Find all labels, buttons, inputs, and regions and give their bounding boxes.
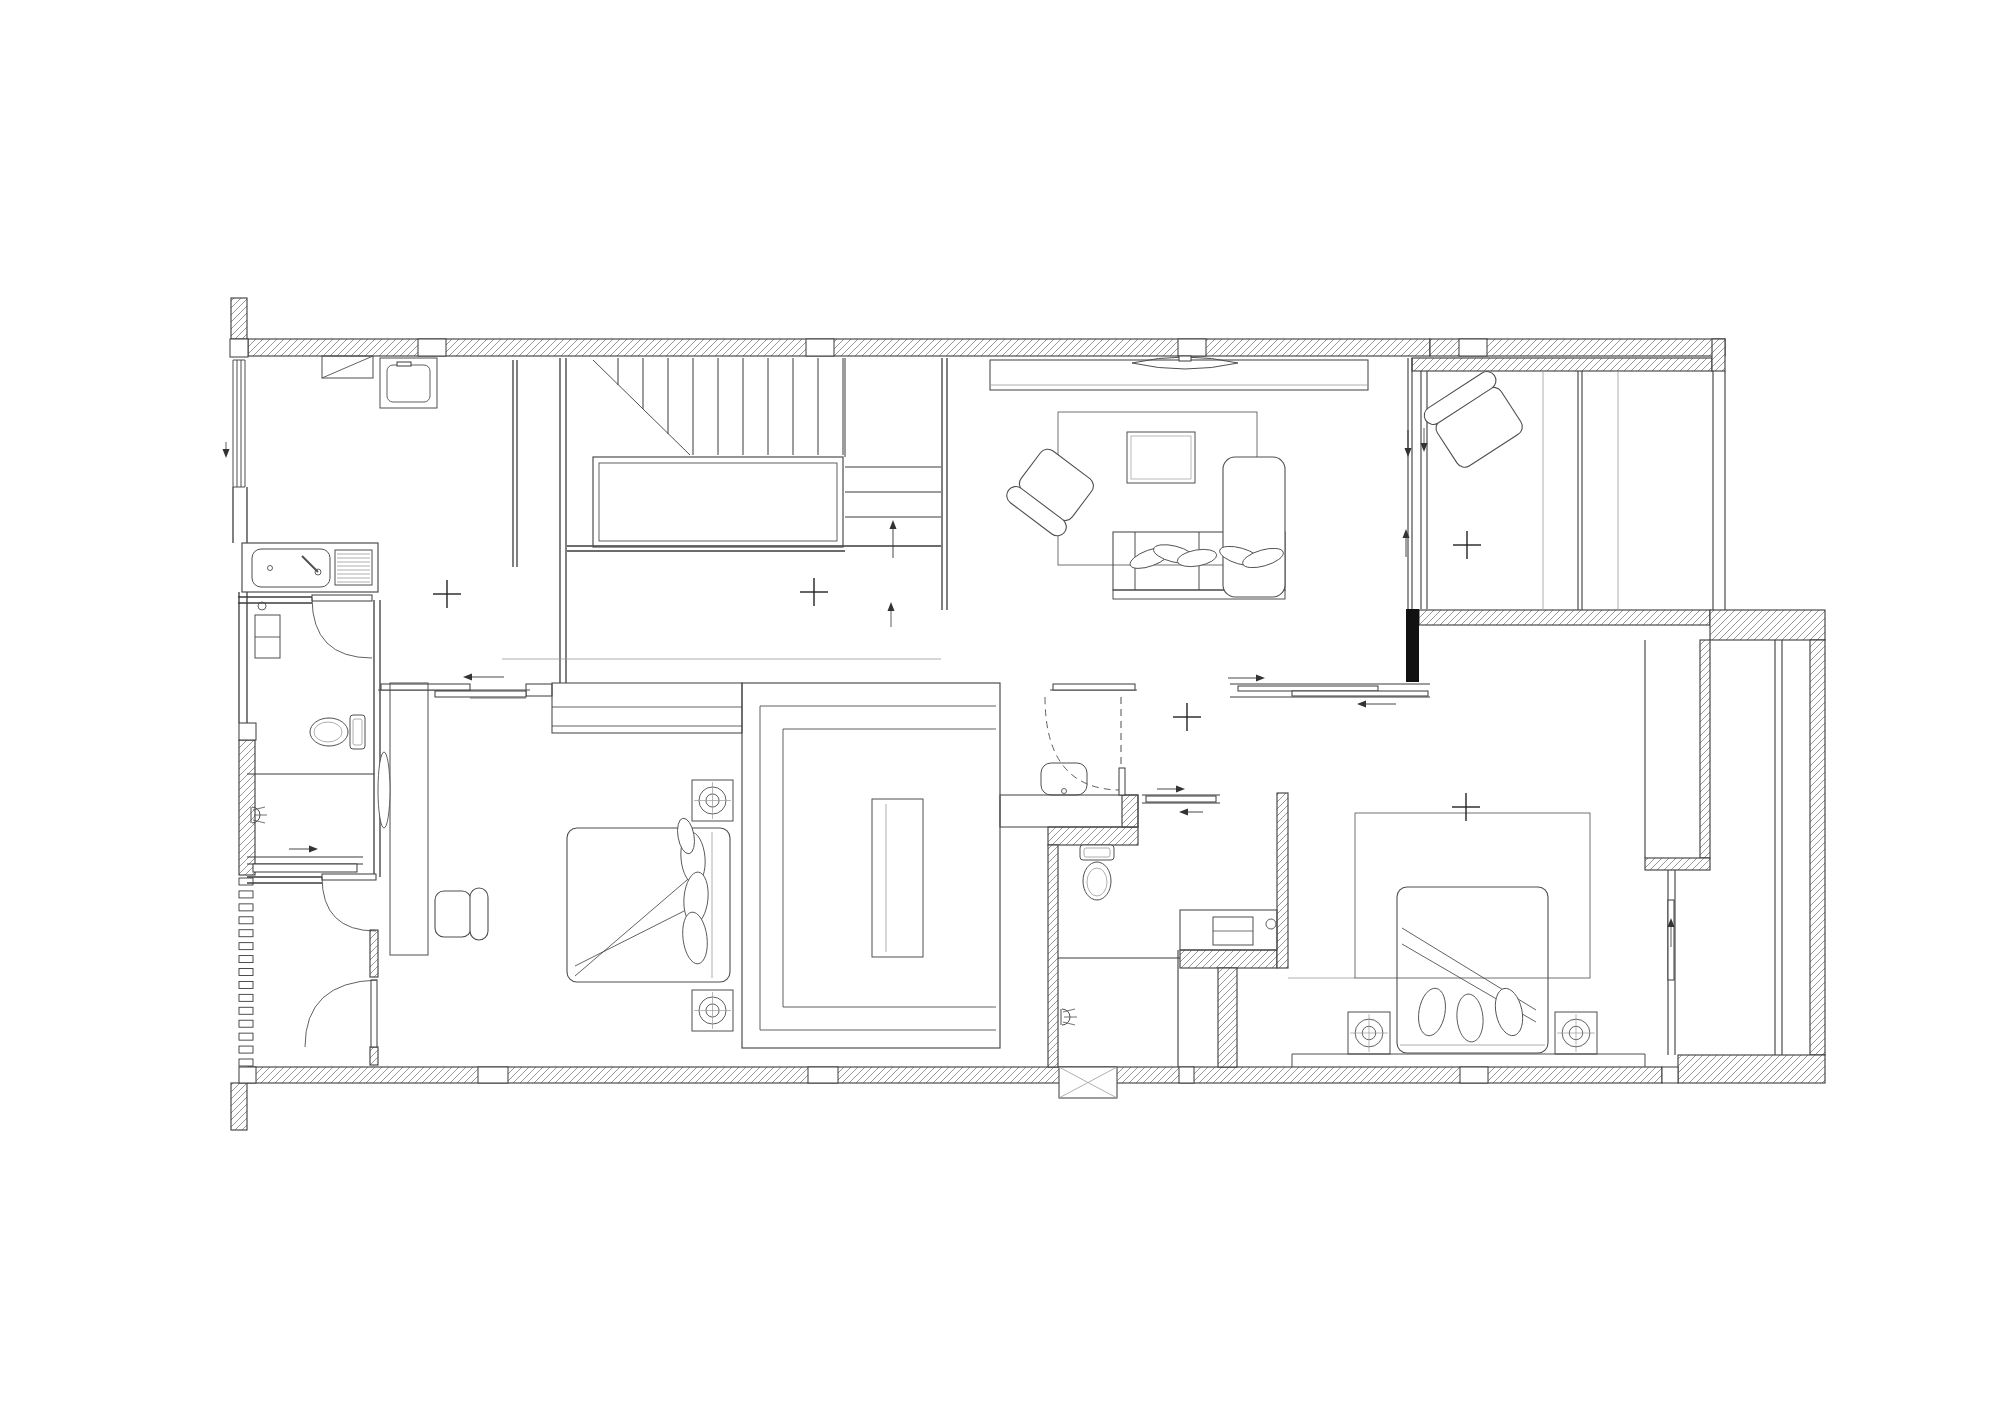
floor-plan-page — [0, 0, 2000, 1413]
column-marker — [806, 339, 834, 356]
wall-bath-center-south-stub — [1218, 968, 1237, 1067]
column-marker — [239, 723, 256, 740]
column-marker — [1178, 339, 1206, 356]
door-leaf-bath1 — [312, 595, 372, 601]
toilet-bath-center — [1080, 845, 1114, 900]
wall-bath-center-stub — [1122, 795, 1138, 827]
column-marker — [418, 339, 446, 356]
floor-plan — [0, 0, 2000, 1413]
column-marker — [1179, 1067, 1194, 1083]
louver-wall — [239, 878, 253, 1066]
leaning-mirror — [378, 752, 390, 828]
wall-balcony-top-inner — [1412, 358, 1712, 371]
wall-top-right-band — [1710, 610, 1825, 640]
door-stub-bath-center — [1119, 768, 1125, 795]
tv-stand — [1179, 356, 1191, 361]
wall-top-left-column-stub — [231, 298, 247, 339]
column-marker — [1662, 1067, 1678, 1083]
hall-slider-leaf — [1053, 684, 1135, 690]
door-leaf-hall-upper — [322, 874, 376, 880]
bedroom1-slider-leaf1 — [381, 684, 470, 690]
rightwing-slider-leaf2 — [1292, 691, 1428, 696]
wall-hall-stub-upper — [370, 930, 378, 977]
wall-hall-stub-lower — [370, 1047, 378, 1065]
column-marker — [808, 1067, 838, 1083]
wall-bottom-left-stub — [231, 1083, 247, 1130]
bath-center-slider-leaf — [1146, 796, 1216, 802]
column-marker — [1459, 339, 1487, 356]
wall-rightwing-top — [1419, 610, 1710, 625]
wall-bottom-right-band — [1678, 1055, 1825, 1083]
wall-bath-center-band — [1048, 827, 1138, 845]
wall-shaft-cap — [1645, 858, 1710, 870]
toilet-bath1 — [310, 715, 365, 749]
wall-bottom — [248, 1067, 1662, 1083]
column-marker — [1460, 1067, 1488, 1083]
washing-machine-handle — [397, 362, 411, 366]
wall-shaft-right — [1700, 640, 1710, 858]
wall-top-right-corner — [1712, 339, 1725, 371]
bath1-sliding-leaf — [253, 864, 357, 872]
sofa-chaise — [1223, 457, 1285, 597]
wall-right — [1810, 640, 1825, 1055]
solid-column — [1406, 609, 1419, 682]
wall-vanity2-band — [1180, 950, 1277, 968]
column-marker — [239, 1067, 256, 1083]
column-marker — [478, 1067, 508, 1083]
door-leaf-hall-lower — [371, 980, 377, 1047]
wall-bedroom2-west — [1277, 793, 1288, 968]
bedroom1-slider-leaf2 — [435, 691, 526, 697]
nightstand-lamp — [692, 990, 733, 1031]
desk-chair — [435, 888, 488, 940]
column-marker — [230, 339, 248, 357]
rightwing-slider-leaf1 — [1238, 686, 1378, 691]
nightstand-lamp — [692, 780, 733, 821]
nightstand-lamp — [1555, 1012, 1597, 1054]
wall-bath-center-left — [1048, 845, 1058, 1067]
nightstand-lamp — [1348, 1012, 1390, 1054]
